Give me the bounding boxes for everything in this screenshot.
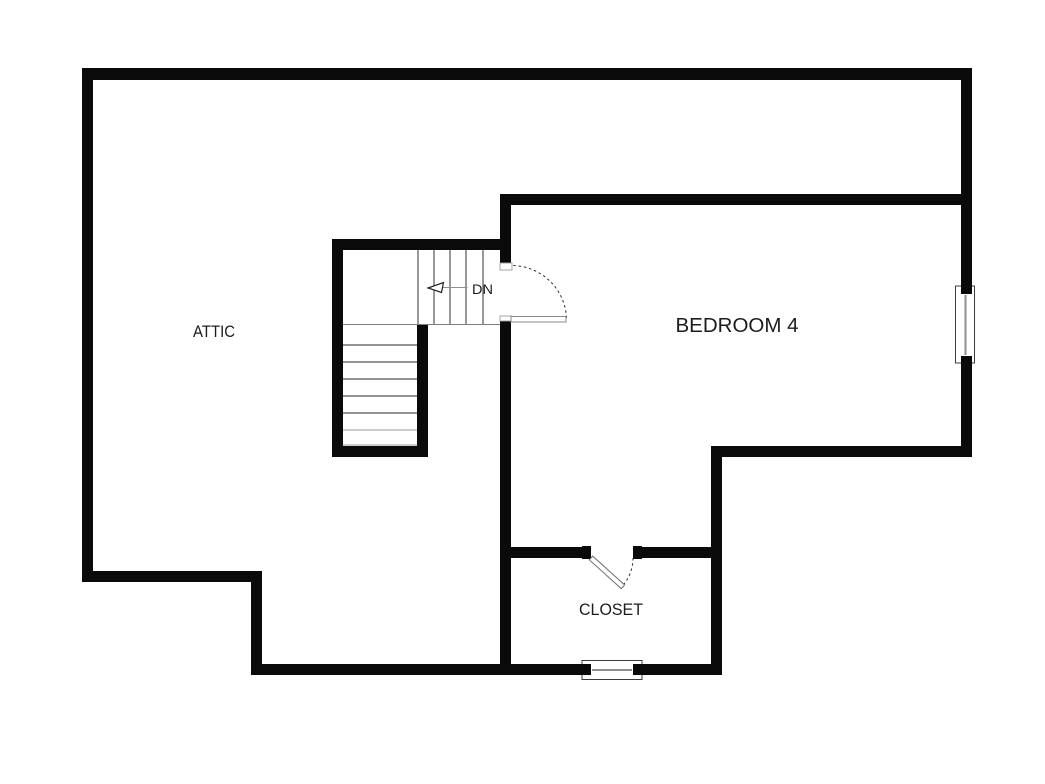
stair-direction-label: DN bbox=[472, 281, 493, 297]
exterior-wall-step-horizontal bbox=[82, 571, 262, 582]
exterior-wall-right-above-window bbox=[961, 68, 972, 294]
stair-enclosure-left-wall bbox=[332, 239, 343, 457]
stair-enclosure-inner-wall bbox=[417, 325, 428, 457]
exterior-wall-bottom-left-of-window bbox=[251, 664, 591, 675]
exterior-wall-right-below-window bbox=[961, 356, 972, 457]
floor-plan: ATTIC BEDROOM 4 CLOSET DN bbox=[0, 0, 1045, 784]
closet-top-wall-left bbox=[511, 547, 582, 558]
bedroom4-room-label: BEDROOM 4 bbox=[676, 315, 799, 337]
stair-enclosure-bottom-wall bbox=[332, 446, 428, 457]
divider-wall-above-bedroom-door bbox=[500, 194, 511, 263]
exterior-wall-bottom-right-of-window bbox=[633, 664, 722, 675]
attic-room-label: ATTIC bbox=[193, 322, 235, 341]
closet-door-jamb-right bbox=[633, 546, 642, 559]
bedroom-door-jamb-cap-bottom bbox=[500, 316, 512, 321]
closet-top-wall-right bbox=[642, 547, 711, 558]
closet-room-label: CLOSET bbox=[579, 600, 643, 619]
floor-plan-drawing: ATTIC BEDROOM 4 CLOSET DN bbox=[0, 0, 1045, 784]
divider-wall-below-bedroom-door bbox=[500, 320, 511, 675]
exterior-wall-closet-right bbox=[711, 446, 722, 675]
closet-door-jamb-left bbox=[582, 546, 591, 559]
bedroom-door-leaf bbox=[511, 317, 566, 323]
exterior-wall-step-vertical bbox=[251, 571, 262, 675]
exterior-wall-bedroom-bottom bbox=[711, 446, 972, 457]
bedroom-door-jamb-cap-top bbox=[500, 263, 512, 270]
stair-enclosure-top-wall bbox=[332, 239, 500, 250]
bedroom-top-wall bbox=[500, 194, 972, 205]
exterior-wall-left bbox=[82, 68, 93, 582]
exterior-wall-top bbox=[82, 68, 972, 80]
